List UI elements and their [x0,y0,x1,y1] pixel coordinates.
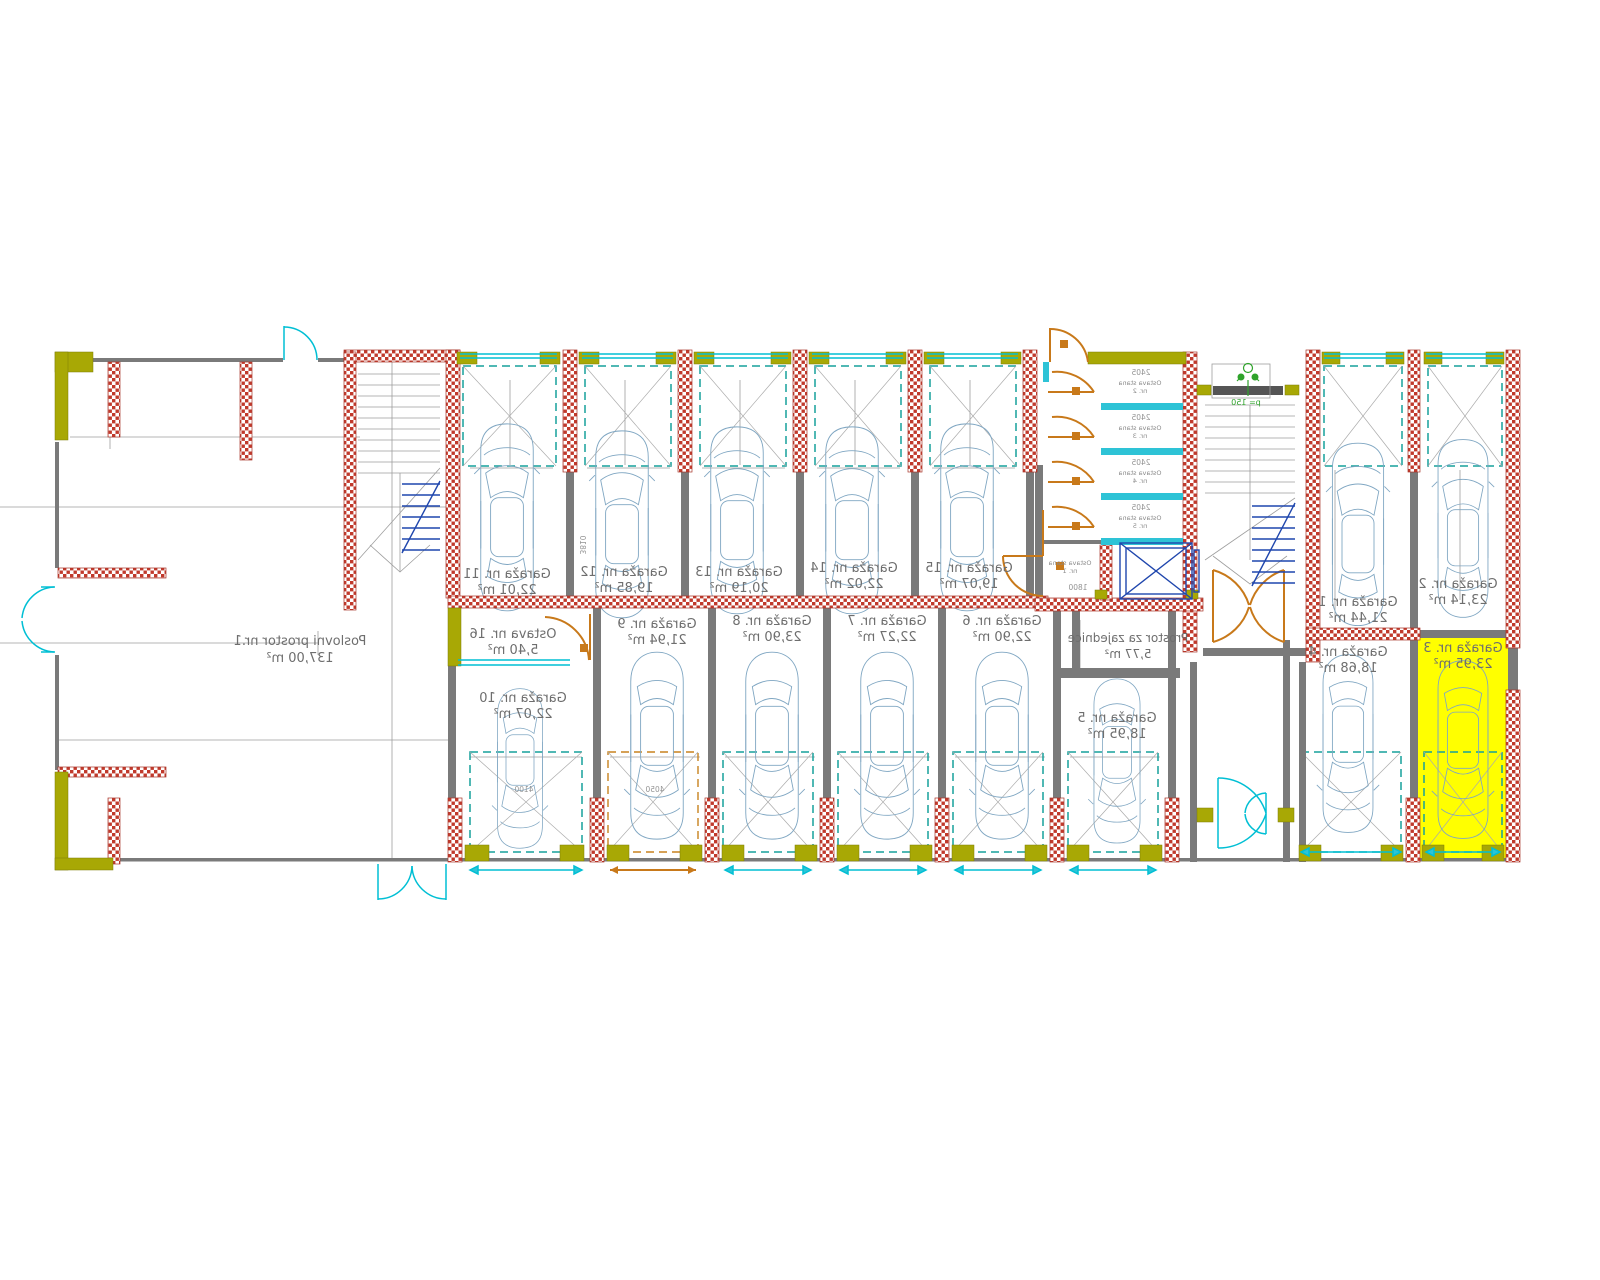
svg-text:23,95 m²: 23,95 m² [1433,657,1492,672]
svg-text:23,14 m²: 23,14 m² [1428,593,1487,608]
svg-text:nr. 5: nr. 5 [1133,522,1147,530]
room-label: Garaža nr. 3 [1423,641,1502,656]
svg-text:22,27 m²: 22,27 m² [857,630,916,645]
svg-text:18,95 m²: 18,95 m² [1087,727,1146,742]
svg-text:nr. 1: nr. 1 [1063,567,1077,575]
svg-text:nr. 4: nr. 4 [1133,477,1147,485]
storage-label: Ostava stana [1119,379,1162,387]
left-staircase [358,374,440,572]
room-label: Garaža nr. 9 [617,617,696,632]
storage-label: Ostava stana [1119,424,1162,432]
room-label: Garaža nr. 15 [925,561,1012,576]
svg-text:2405: 2405 [1131,413,1150,422]
svg-text:2405: 2405 [1131,368,1150,377]
room-label: Garaža nr. 1 [1318,595,1397,610]
room-label: Garaža nr. 6 [962,614,1041,629]
room-label: Ostava nr. 16 [469,627,556,642]
svg-text:18,68 m²: 18,68 m² [1318,661,1377,676]
storage-label: Ostava stana [1049,559,1092,567]
room-label: Garaža nr. 2 [1418,577,1497,592]
svg-text:21,44 m²: 21,44 m² [1328,611,1387,626]
svg-text:nr. 3: nr. 3 [1133,432,1147,440]
room-label: Garaža nr. 12 [580,565,667,580]
room-label: Garaža nr. 4 [1308,645,1387,660]
storage-label: Ostava stana [1119,469,1162,477]
gray-partition-walls [55,358,1518,862]
svg-text:23,90 m²: 23,90 m² [742,630,801,645]
svg-text:19,85 m²: 19,85 m² [594,581,653,596]
svg-text:2405: 2405 [1131,458,1150,467]
svg-text:21,94 m²: 21,94 m² [627,633,686,648]
svg-text:5,77 m²: 5,77 m² [1104,647,1151,661]
svg-text:22,07 m²: 22,07 m² [493,707,552,722]
garage9-threshold-orange [610,866,696,874]
room-label: Garaža nr. 5 [1077,711,1156,726]
svg-text:nr. 2: nr. 2 [1133,387,1147,395]
svg-text:4100: 4100 [514,785,533,794]
floor-plan-page: Poslovni prostor nr.1137,00 m² Garaža nr… [0,0,1600,1280]
svg-text:22,90 m²: 22,90 m² [972,630,1031,645]
room-label: Poslovni prostor nr.1 [234,634,367,649]
svg-text:22,02 m²: 22,02 m² [824,577,883,592]
room-label: Garaža nr. 13 [695,565,782,580]
svg-text:20,19 m²: 20,19 m² [709,581,768,596]
svg-text:3810: 3810 [578,535,587,554]
room-label: Garaža nr. 10 [479,691,566,706]
room-label: Prostor za zajednice [1068,631,1188,645]
svg-text:137,00 m²: 137,00 m² [266,651,334,666]
room-label: Garaža nr. 8 [732,614,811,629]
storage-label: Ostava stana [1119,514,1162,522]
svg-text:2405: 2405 [1131,503,1150,512]
floor-plan-drawing: Poslovni prostor nr.1137,00 m² Garaža nr… [0,0,1600,1280]
svg-text:22,01 m²: 22,01 m² [477,583,536,598]
room-label: Garaža nr. 7 [847,614,926,629]
room-label: Garaža nr. 14 [810,561,897,576]
svg-text:4050: 4050 [645,785,664,794]
planter-note: p= 150 [1231,398,1261,407]
svg-text:1800: 1800 [1068,583,1087,592]
room-label: Garaža nr. 11 [463,567,550,582]
svg-text:19,07 m²: 19,07 m² [939,577,998,592]
svg-text:5,40 m²: 5,40 m² [488,643,539,658]
